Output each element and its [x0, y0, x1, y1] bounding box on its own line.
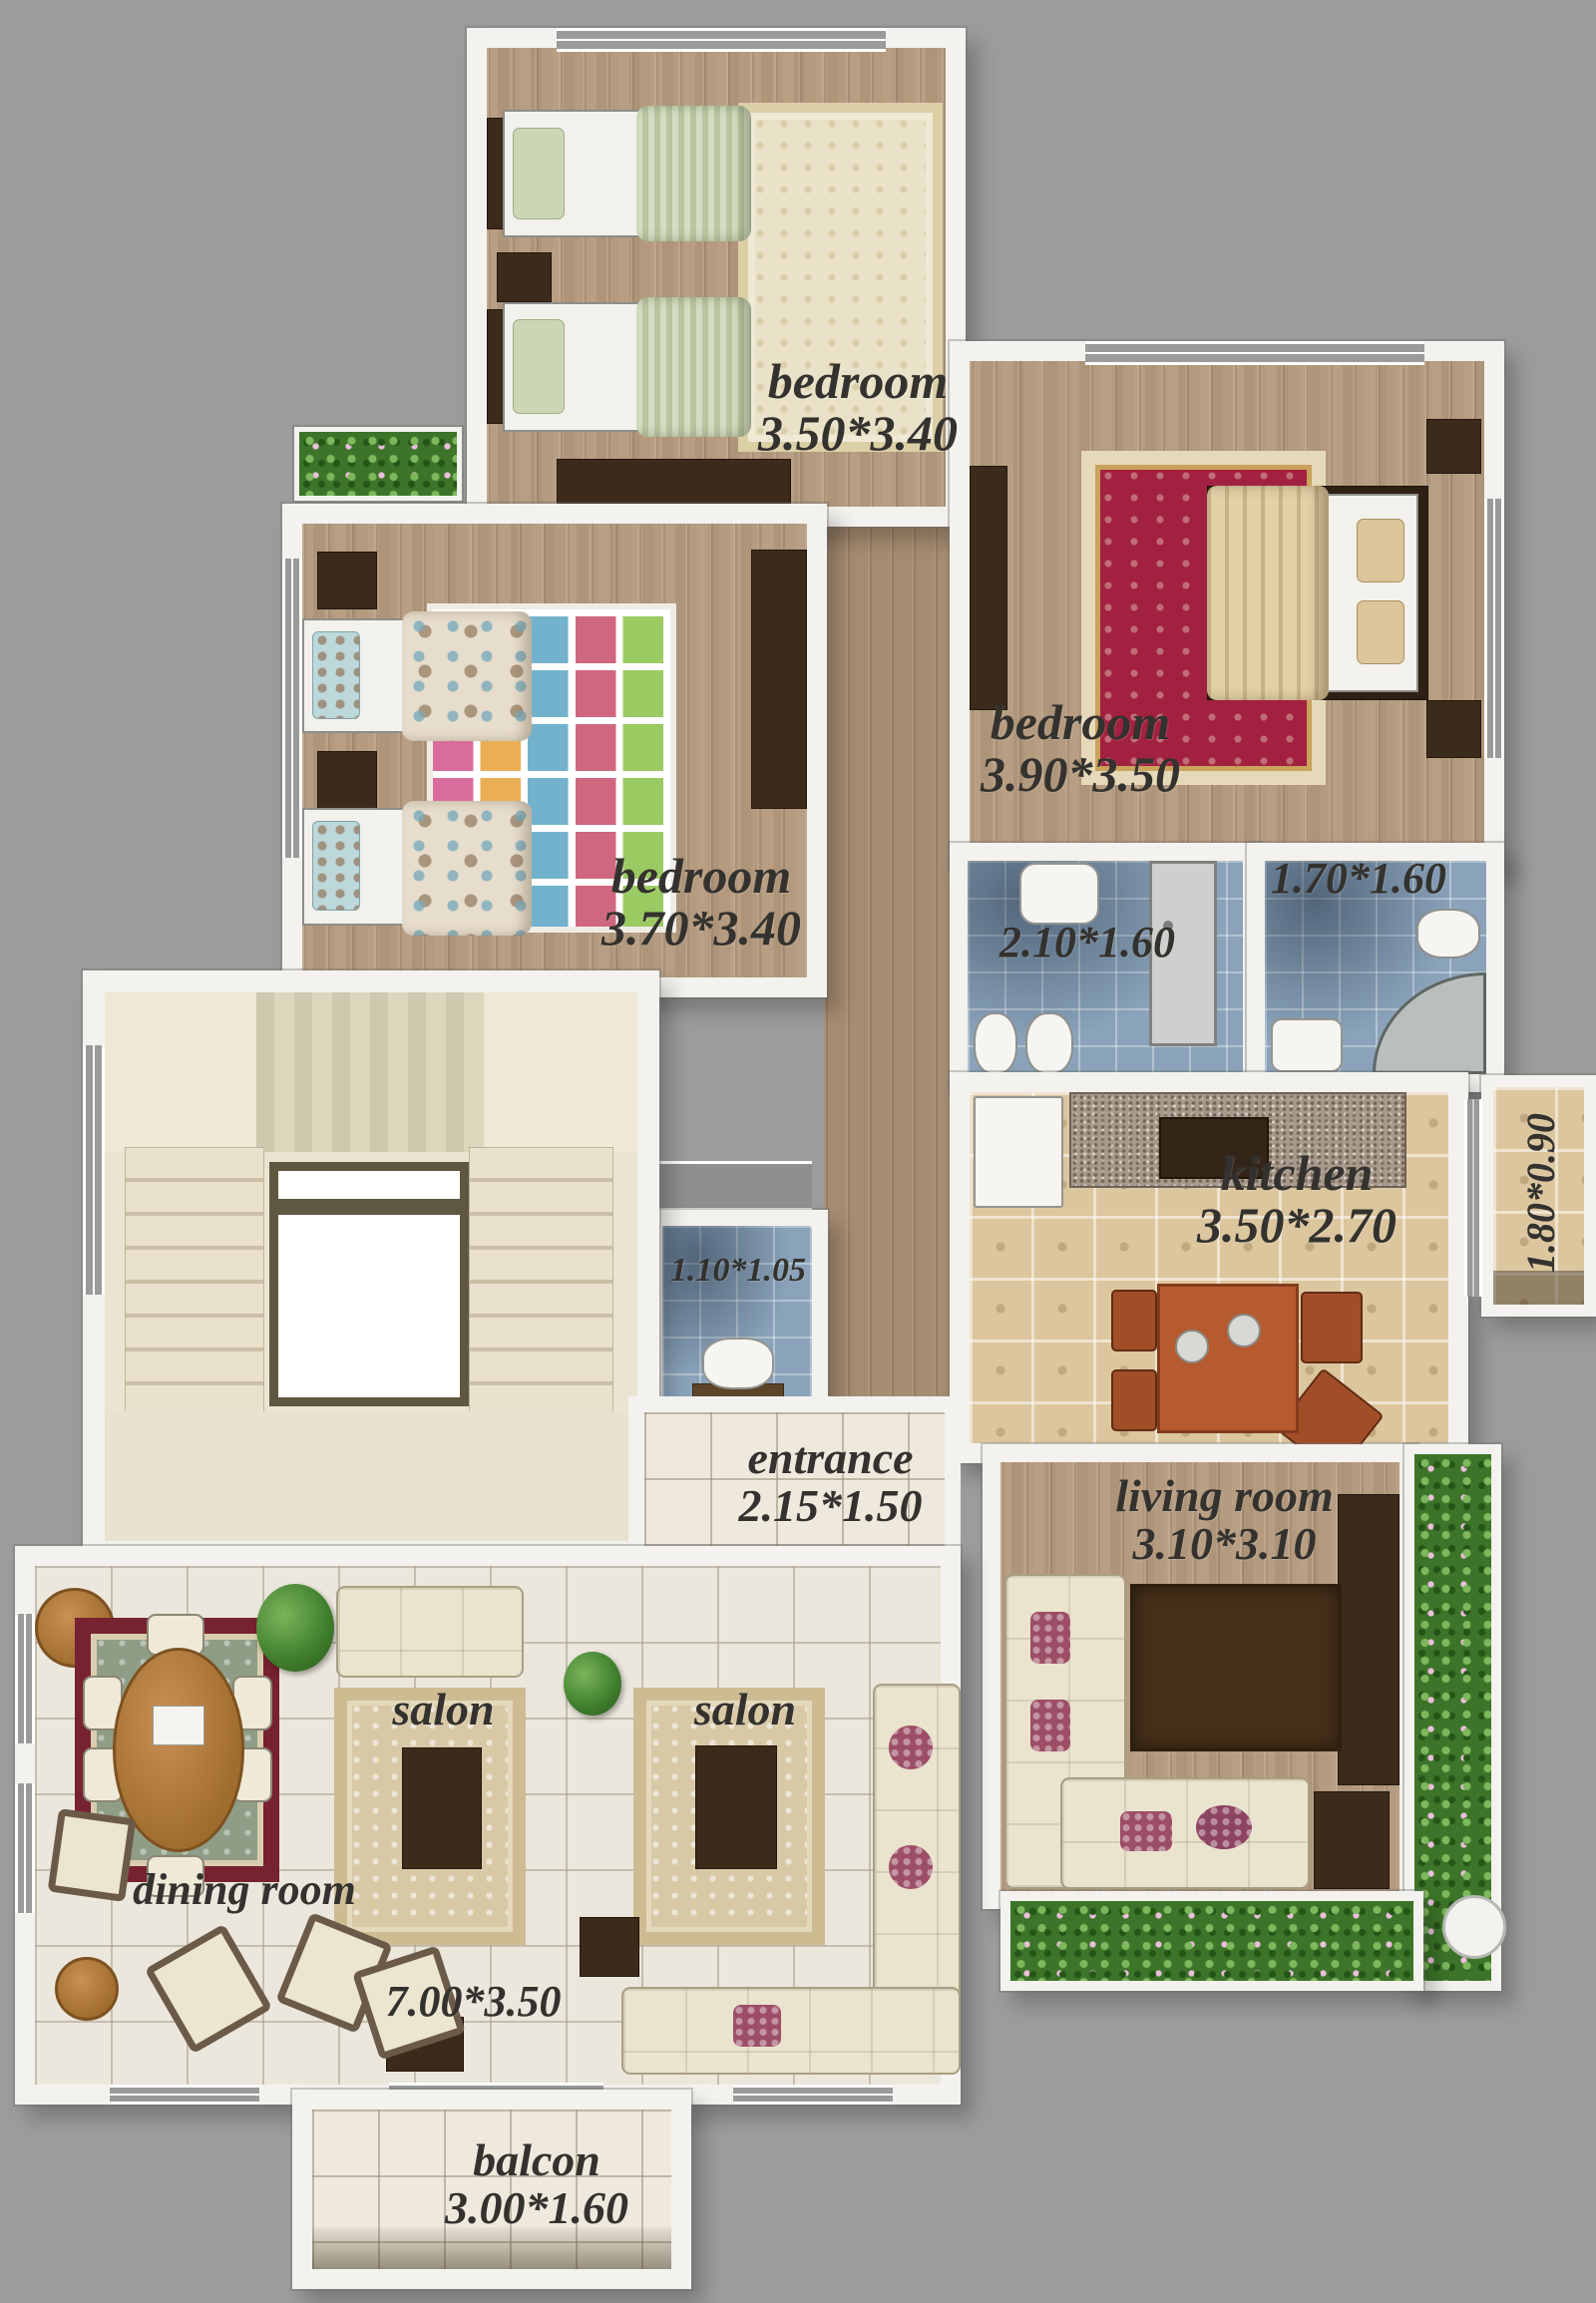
window	[15, 1614, 35, 1743]
elevator	[269, 1162, 469, 1406]
room-bedroom-top	[467, 28, 966, 527]
toilet	[1416, 909, 1480, 959]
bedroom-rug	[738, 103, 943, 452]
sink	[1271, 1018, 1343, 1072]
pillow	[1357, 600, 1404, 664]
stair-landing-bottom	[105, 1411, 637, 1541]
plant	[256, 1584, 334, 1672]
shower-door	[1149, 861, 1217, 1046]
tv-cabinet	[1338, 1494, 1399, 1785]
window	[15, 1783, 35, 1913]
corner-unit	[1426, 700, 1481, 758]
blanket	[1207, 486, 1329, 700]
pillow	[312, 631, 360, 719]
dresser	[557, 459, 791, 505]
living-rug	[1130, 1584, 1342, 1751]
fridge	[974, 1096, 1063, 1208]
armchair	[48, 1808, 137, 1902]
window	[282, 559, 302, 858]
window	[557, 28, 886, 52]
cushion	[1120, 1811, 1172, 1851]
bidet	[974, 1012, 1017, 1074]
round-table	[1442, 1895, 1506, 1959]
kitchen-table	[1157, 1284, 1299, 1433]
round-side-table	[55, 1957, 119, 2021]
sofa	[336, 1586, 524, 1678]
planter-bottom	[1000, 1891, 1423, 1991]
hallway-floor	[824, 517, 958, 1414]
cushion	[1030, 1612, 1070, 1664]
room-salon	[15, 1546, 961, 2105]
blanket	[402, 611, 532, 741]
room-wc	[646, 1210, 828, 1421]
sofa	[1060, 1777, 1310, 1889]
window	[110, 2085, 259, 2105]
room-kitchen-balcony	[1481, 1075, 1596, 1317]
window	[1484, 499, 1504, 758]
cushion	[733, 2005, 781, 2047]
shadow	[1493, 1271, 1584, 1305]
room-bathroom-corner	[1247, 843, 1504, 1092]
wardrobe	[751, 550, 807, 809]
flower-box	[294, 427, 462, 501]
wardrobe	[970, 466, 1007, 710]
tray	[153, 1706, 204, 1745]
balcony-rail	[1464, 1099, 1482, 1297]
side-table	[580, 1917, 639, 1977]
sink	[1019, 863, 1099, 925]
radiator	[650, 1161, 812, 1211]
window	[733, 2085, 893, 2105]
pillow	[513, 319, 565, 414]
dining-chair	[147, 1855, 204, 1897]
stairs	[469, 1147, 613, 1416]
nightstand	[317, 751, 377, 809]
nightstand	[497, 252, 552, 302]
toilet	[1025, 1012, 1073, 1074]
plant	[564, 1652, 621, 1716]
kitchen-chair	[1301, 1292, 1363, 1363]
kitchen-chair	[1111, 1290, 1157, 1351]
room-living	[983, 1444, 1417, 1909]
sink	[702, 1338, 774, 1389]
plate	[1175, 1330, 1209, 1363]
plate	[1227, 1314, 1261, 1347]
side-table	[1314, 1791, 1390, 1889]
shadow	[312, 2227, 671, 2269]
cushion	[889, 1726, 933, 1769]
coffee-table	[695, 1745, 777, 1869]
cushion	[1030, 1700, 1070, 1751]
room-kitchen	[950, 1072, 1468, 1463]
room-bedroom-right	[950, 341, 1504, 870]
window	[83, 1045, 105, 1295]
corner-unit	[1426, 419, 1481, 474]
coffee-table	[402, 1747, 482, 1869]
room-balcony	[292, 2090, 691, 2289]
armchair	[145, 1924, 273, 2055]
blanket	[402, 801, 532, 936]
stove	[1159, 1117, 1269, 1179]
pillow	[312, 821, 360, 911]
sectional-sofa	[621, 1987, 961, 2075]
nightstand	[317, 552, 377, 609]
door-handle	[1163, 921, 1173, 931]
room-bedroom-left	[282, 504, 827, 997]
window	[1085, 341, 1424, 365]
stairs	[125, 1147, 264, 1416]
pillow	[1357, 519, 1404, 582]
floor-plan: bedroom 3.50*3.40 bedroom 3.90*3.50 bedr…	[0, 0, 1596, 2303]
pillow	[513, 128, 565, 219]
kitchen-chair	[1111, 1369, 1157, 1431]
blanket	[636, 297, 751, 437]
stair-upper-flight	[256, 992, 484, 1152]
cushion	[1196, 1805, 1252, 1849]
cushion	[889, 1845, 933, 1889]
room-bathroom-main	[950, 843, 1261, 1092]
blanket	[636, 106, 751, 241]
elevator-door	[278, 1199, 460, 1215]
stairwell	[83, 970, 659, 1563]
